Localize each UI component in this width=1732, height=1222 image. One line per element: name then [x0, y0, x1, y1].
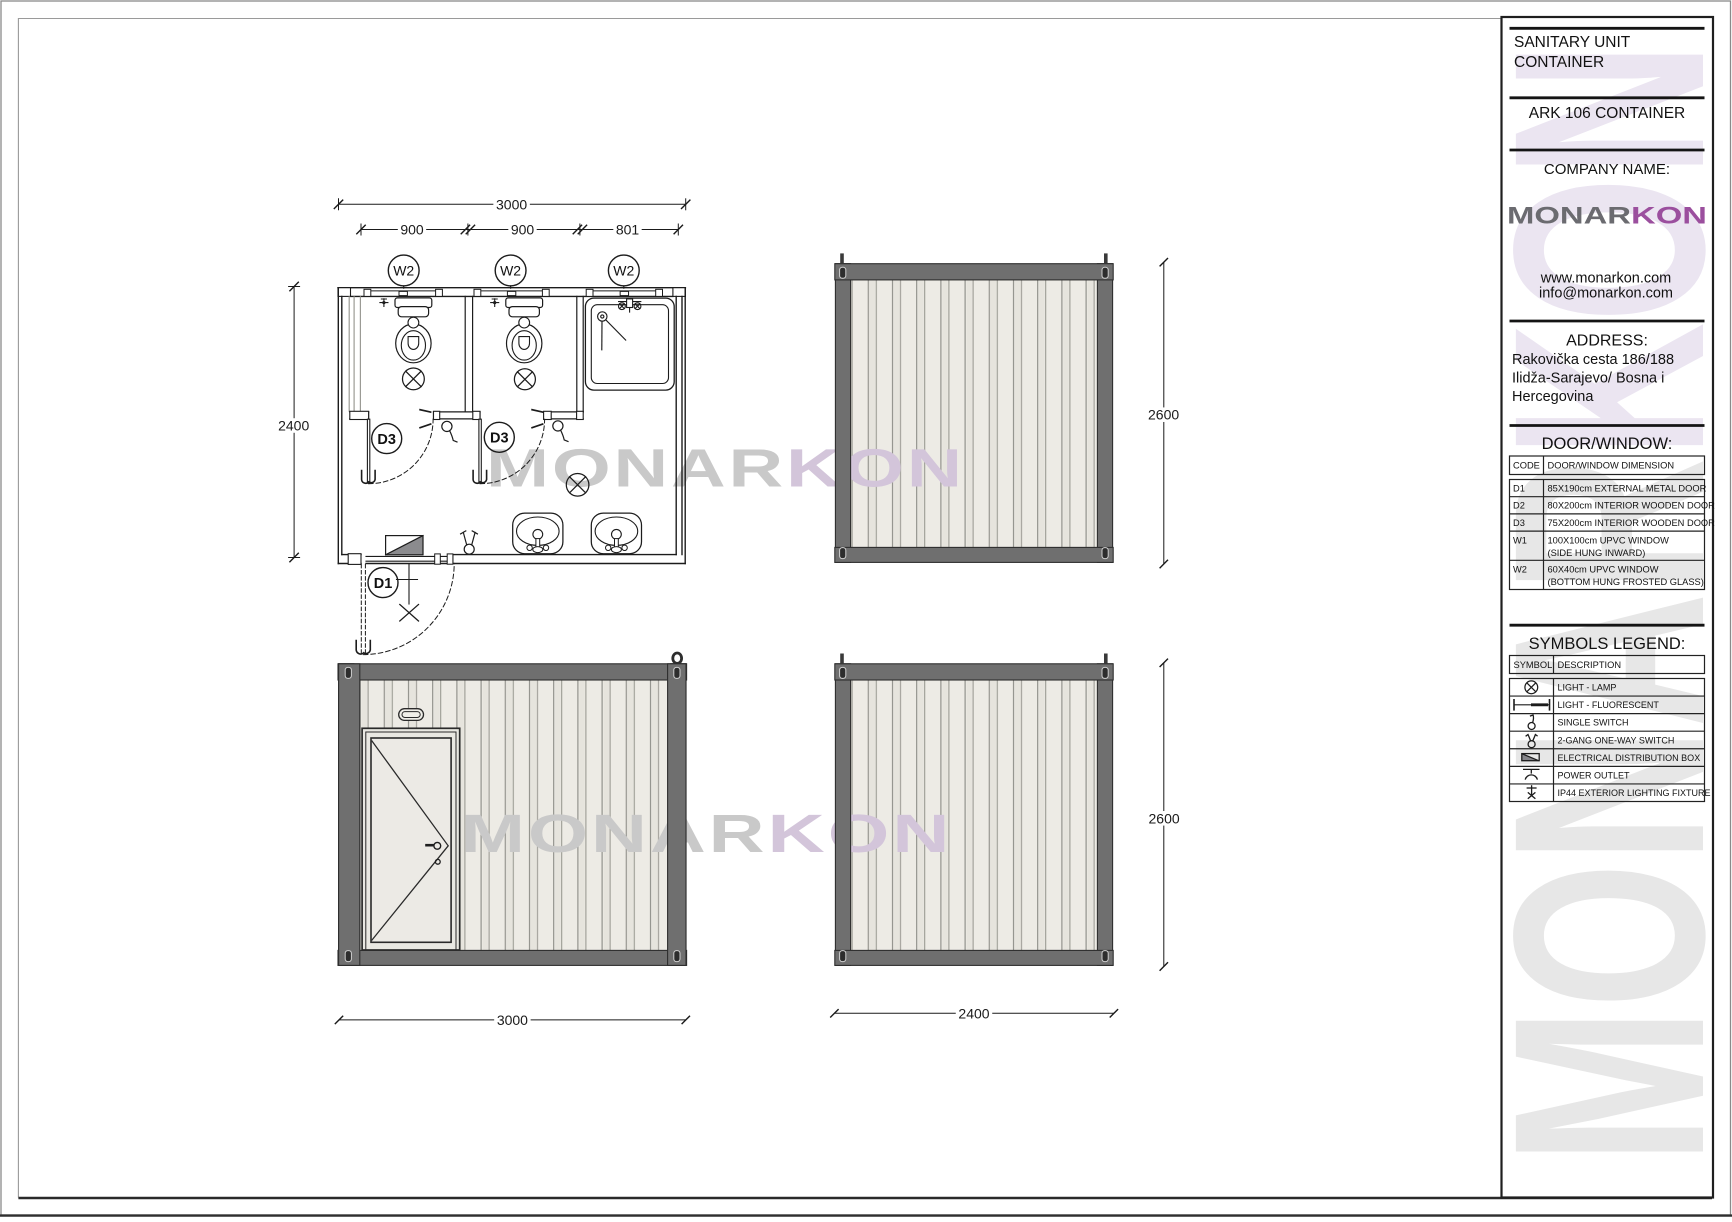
- svg-text:COMPANY NAME:: COMPANY NAME:: [1544, 161, 1670, 178]
- svg-text:100X100cm UPVC WINDOW: 100X100cm UPVC WINDOW: [1548, 536, 1670, 546]
- svg-text:LIGHT - FLUORESCENT: LIGHT - FLUORESCENT: [1558, 700, 1660, 710]
- svg-text:DOOR/WINDOW:: DOOR/WINDOW:: [1542, 435, 1673, 453]
- svg-text:3000: 3000: [497, 1012, 528, 1028]
- svg-text:801: 801: [616, 222, 640, 238]
- svg-text:D3: D3: [377, 432, 396, 448]
- svg-text:W2: W2: [613, 263, 634, 279]
- svg-text:SYMBOLS LEGEND:: SYMBOLS LEGEND:: [1529, 635, 1686, 653]
- svg-text:MONARKON: MONARKON: [1507, 203, 1707, 230]
- svg-text:W2: W2: [500, 263, 521, 279]
- svg-text:W2: W2: [393, 263, 414, 279]
- svg-text:75X200cm INTERIOR WOODEN DOOR: 75X200cm INTERIOR WOODEN DOOR: [1548, 518, 1716, 528]
- svg-text:www.monarkon.com: www.monarkon.com: [1540, 271, 1672, 287]
- svg-text:2600: 2600: [1149, 810, 1180, 826]
- svg-text:CONTAINER: CONTAINER: [1514, 54, 1604, 71]
- svg-text:W1: W1: [1513, 536, 1527, 546]
- svg-text:ADDRESS:: ADDRESS:: [1566, 333, 1648, 350]
- svg-text:2400: 2400: [958, 1005, 989, 1021]
- svg-text:DOOR/WINDOW DIMENSION: DOOR/WINDOW DIMENSION: [1548, 461, 1675, 471]
- svg-text:KON: KON: [768, 805, 953, 864]
- svg-text:SANITARY UNIT: SANITARY UNIT: [1514, 34, 1631, 51]
- svg-text:D3: D3: [490, 431, 509, 447]
- svg-text:D2: D2: [1513, 501, 1525, 511]
- svg-text:info@monarkon.com: info@monarkon.com: [1539, 286, 1673, 302]
- svg-text:900: 900: [511, 222, 535, 238]
- svg-text:ARK 106 CONTAINER: ARK 106 CONTAINER: [1529, 105, 1685, 122]
- svg-text:KON: KON: [786, 439, 965, 498]
- svg-text:60X40cm UPVC WINDOW: 60X40cm UPVC WINDOW: [1548, 565, 1659, 575]
- svg-text:Ilidža-Sarajevo/ Bosna i: Ilidža-Sarajevo/ Bosna i: [1512, 371, 1664, 387]
- svg-text:SYMBOL: SYMBOL: [1514, 660, 1553, 670]
- svg-text:MONAR: MONAR: [461, 805, 768, 864]
- svg-text:ELECTRICAL DISTRIBUTION BOX: ELECTRICAL DISTRIBUTION BOX: [1558, 753, 1701, 763]
- svg-text:(BOTTOM HUNG FROSTED GLASS): (BOTTOM HUNG FROSTED GLASS): [1548, 577, 1704, 587]
- svg-text:MONAR: MONAR: [486, 439, 786, 498]
- svg-text:2600: 2600: [1148, 407, 1179, 423]
- svg-text:CODE: CODE: [1513, 461, 1540, 471]
- svg-text:2-GANG ONE-WAY SWITCH: 2-GANG ONE-WAY SWITCH: [1558, 735, 1675, 745]
- svg-text:DESCRIPTION: DESCRIPTION: [1558, 660, 1622, 670]
- svg-text:IP44 EXTERIOR LIGHTING FIXTURE: IP44 EXTERIOR LIGHTING FIXTURE: [1558, 788, 1711, 798]
- svg-text:3000: 3000: [496, 196, 527, 212]
- svg-text:2400: 2400: [278, 418, 309, 434]
- svg-text:D1: D1: [374, 576, 393, 592]
- svg-text:LIGHT - LAMP: LIGHT - LAMP: [1558, 683, 1617, 693]
- svg-text:D1: D1: [1513, 484, 1525, 494]
- svg-text:Rakovička cesta 186/188: Rakovička cesta 186/188: [1512, 352, 1674, 368]
- svg-text:85X190cm EXTERNAL METAL DOOR: 85X190cm EXTERNAL METAL DOOR: [1548, 484, 1707, 494]
- svg-text:(SIDE HUNG INWARD): (SIDE HUNG INWARD): [1548, 548, 1646, 558]
- svg-text:900: 900: [400, 222, 424, 238]
- svg-text:W2: W2: [1513, 565, 1527, 575]
- svg-text:Hercegovina: Hercegovina: [1512, 389, 1594, 405]
- svg-text:80X200cm INTERIOR WOODEN DOOR: 80X200cm INTERIOR WOODEN DOOR: [1548, 501, 1716, 511]
- svg-text:D3: D3: [1513, 518, 1525, 528]
- svg-text:POWER OUTLET: POWER OUTLET: [1558, 770, 1631, 780]
- svg-text:SINGLE SWITCH: SINGLE SWITCH: [1558, 718, 1629, 728]
